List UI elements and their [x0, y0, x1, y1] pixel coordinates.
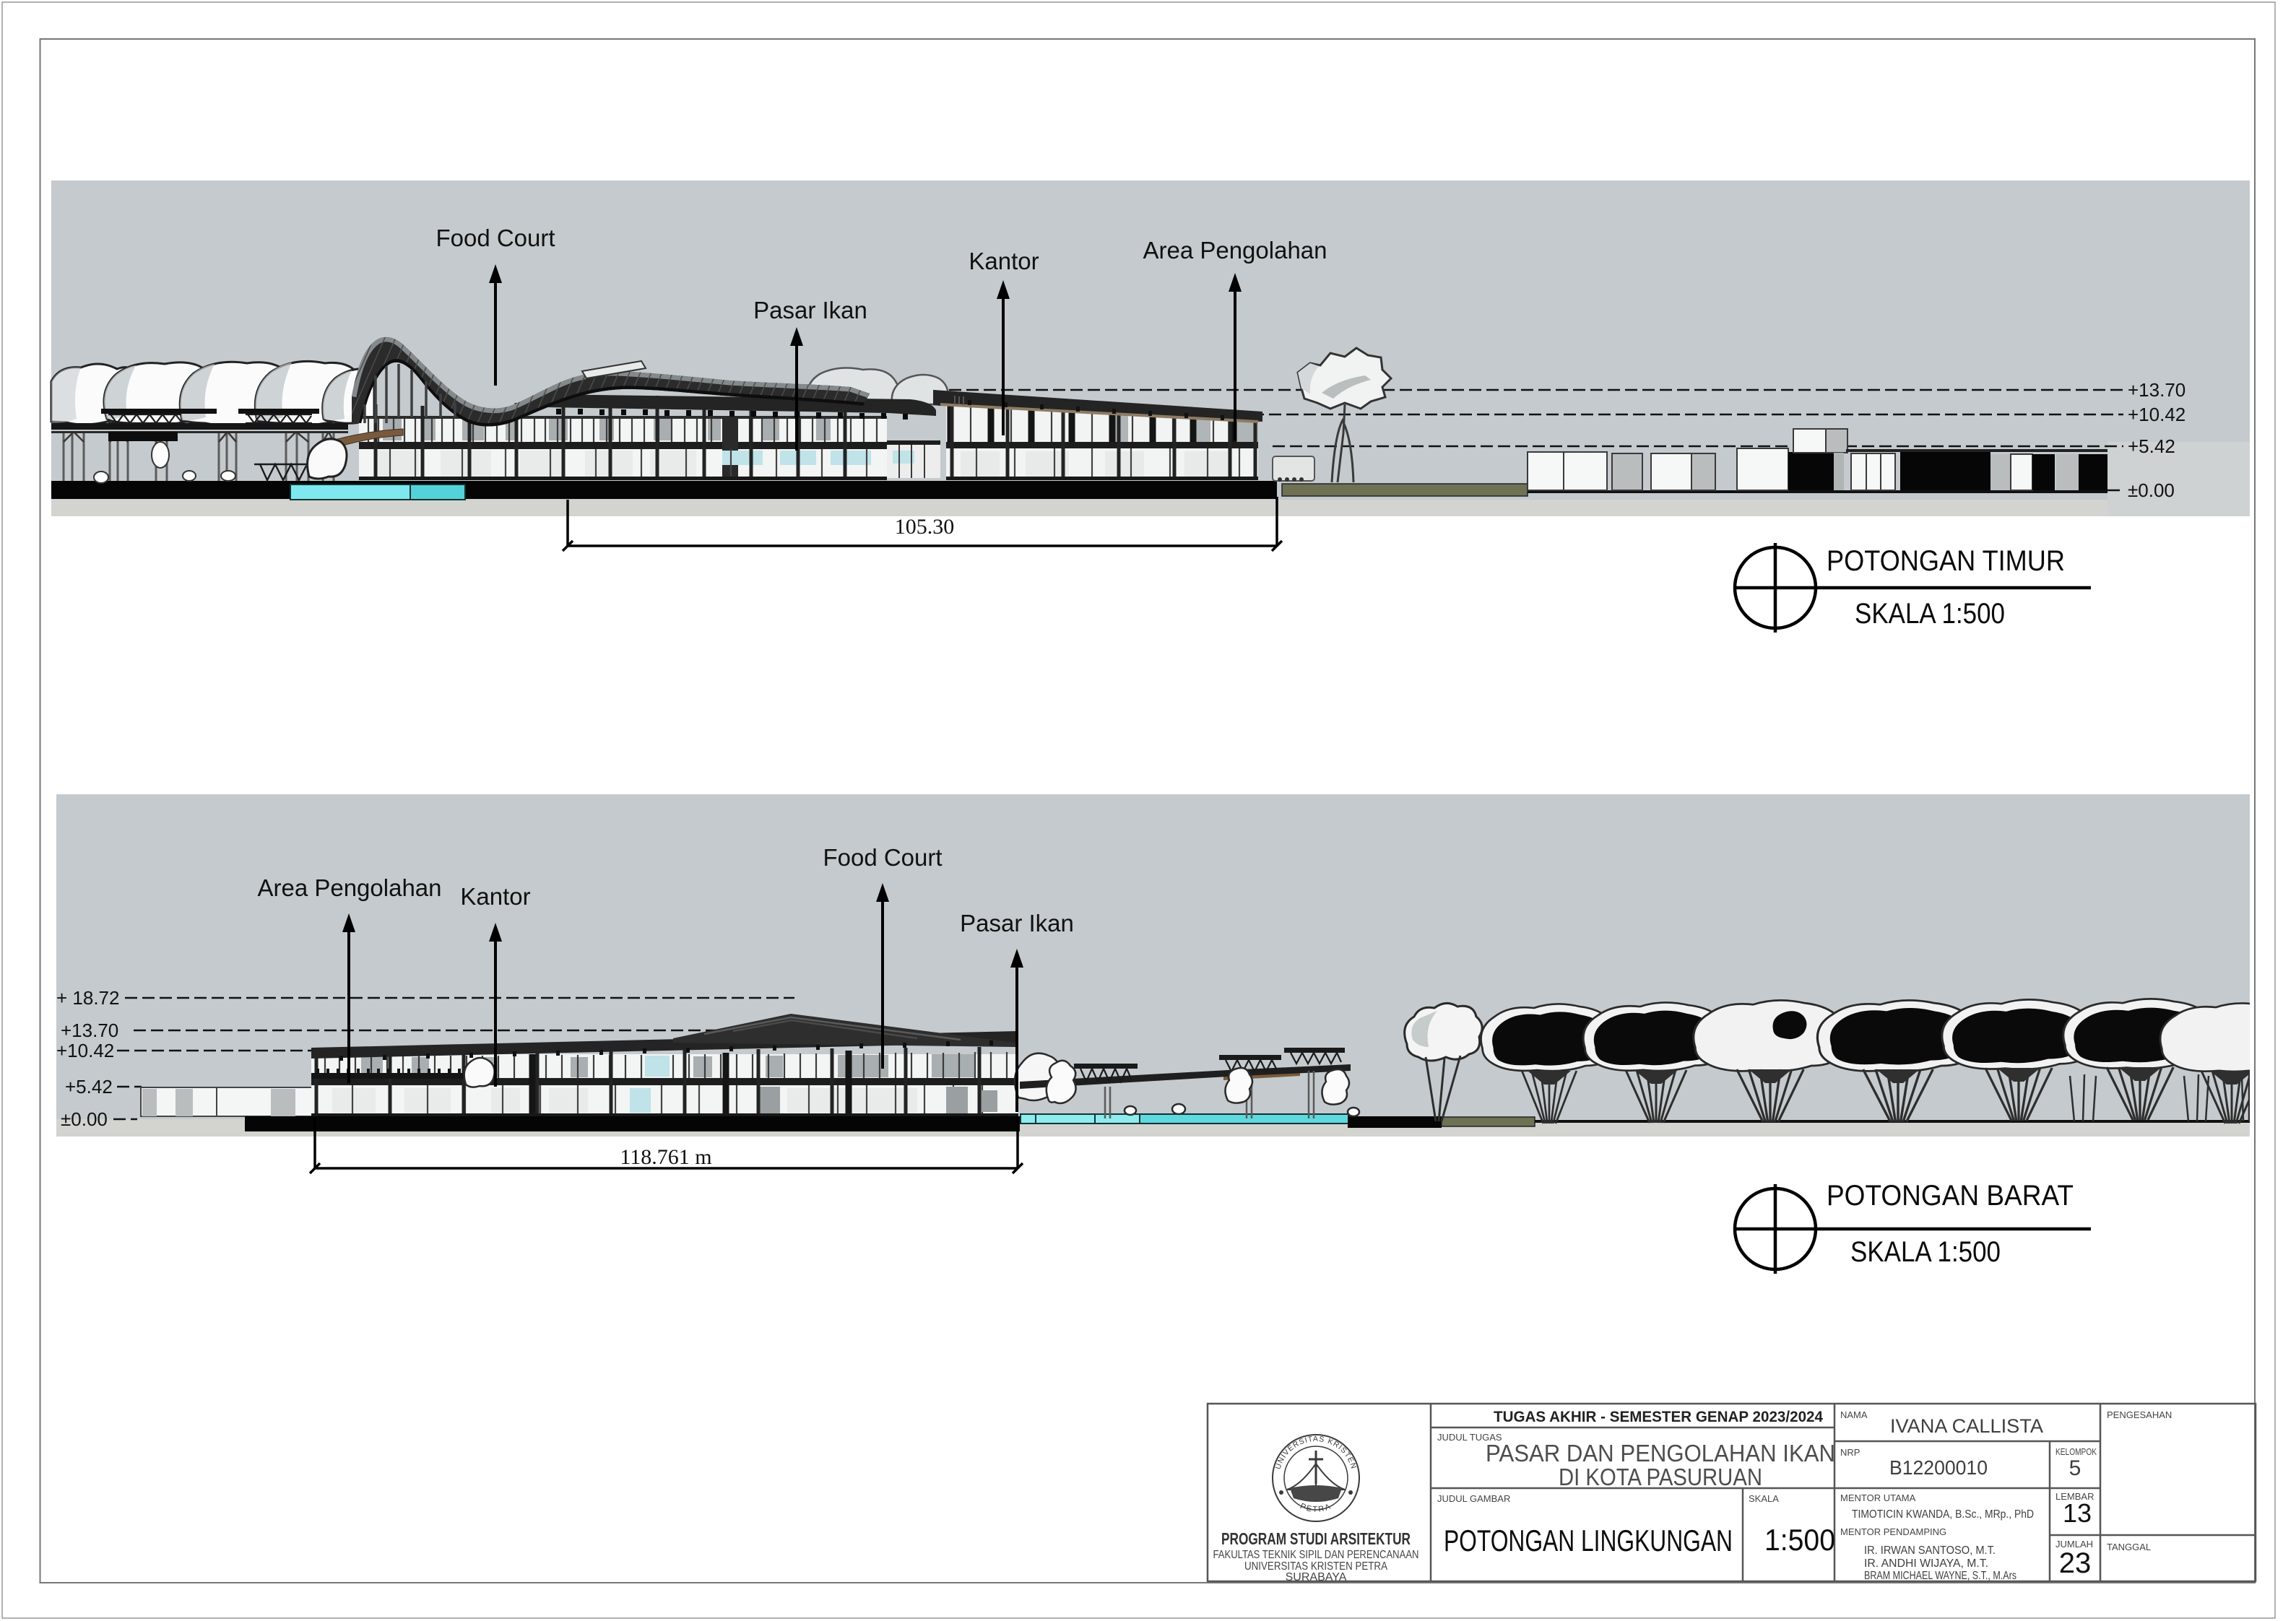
svg-text:MENTOR PENDAMPING: MENTOR PENDAMPING — [1840, 1526, 1946, 1537]
svg-text:+5.42: +5.42 — [2128, 435, 2175, 457]
svg-text:SURABAYA: SURABAYA — [1286, 1571, 1347, 1583]
svg-text:PASAR DAN PENGOLAHAN IKAN: PASAR DAN PENGOLAHAN IKAN — [1486, 1440, 1835, 1466]
svg-text:+13.70: +13.70 — [2128, 379, 2185, 401]
svg-text:TANGGAL: TANGGAL — [2107, 1542, 2151, 1552]
svg-text:MENTOR UTAMA: MENTOR UTAMA — [1840, 1492, 1916, 1503]
svg-text:118.761 m: 118.761 m — [620, 1145, 711, 1169]
svg-text:POTONGAN LINGKUNGAN: POTONGAN LINGKUNGAN — [1444, 1524, 1733, 1557]
svg-text:IR. ANDHI WIJAYA, M.T.: IR. ANDHI WIJAYA, M.T. — [1864, 1557, 1988, 1570]
svg-text:SKALA 1:500: SKALA 1:500 — [1855, 598, 2005, 630]
svg-text:JUDUL GAMBAR: JUDUL GAMBAR — [1437, 1493, 1510, 1504]
svg-text:Kantor: Kantor — [969, 248, 1039, 274]
svg-text:+5.42: +5.42 — [65, 1076, 113, 1098]
svg-text:Area Pengolahan: Area Pengolahan — [1143, 237, 1327, 264]
svg-text:+10.42: +10.42 — [2128, 404, 2185, 425]
svg-text:NAMA: NAMA — [1840, 1409, 1868, 1420]
svg-text:BRAM MICHAEL WAYNE, S.T., M.Ar: BRAM MICHAEL WAYNE, S.T., M.Ars — [1864, 1570, 2016, 1582]
svg-text:Kantor: Kantor — [460, 883, 530, 910]
svg-text:FAKULTAS TEKNIK SIPIL DAN PERE: FAKULTAS TEKNIK SIPIL DAN PERENCANAAN — [1213, 1549, 1419, 1561]
svg-text:POTONGAN BARAT: POTONGAN BARAT — [1827, 1180, 2074, 1212]
svg-text:B12200010: B12200010 — [1889, 1456, 1988, 1479]
svg-text:NRP: NRP — [1840, 1447, 1860, 1458]
svg-text:+13.70: +13.70 — [61, 1020, 118, 1041]
svg-text:SKALA: SKALA — [1749, 1493, 1779, 1504]
svg-text:TUGAS AKHIR - SEMESTER GENAP 2: TUGAS AKHIR - SEMESTER GENAP 2023/2024 — [1494, 1409, 1823, 1425]
svg-text:Area Pengolahan: Area Pengolahan — [257, 874, 441, 901]
svg-text:IR. IRWAN SANTOSO, M.T.: IR. IRWAN SANTOSO, M.T. — [1864, 1544, 1996, 1557]
svg-text:POTONGAN TIMUR: POTONGAN TIMUR — [1827, 545, 2065, 577]
svg-text:SKALA 1:500: SKALA 1:500 — [1850, 1236, 2001, 1268]
svg-text:5: 5 — [2069, 1456, 2081, 1480]
svg-text:KELOMPOK: KELOMPOK — [2055, 1446, 2097, 1457]
svg-text:±0.00: ±0.00 — [2128, 479, 2175, 501]
svg-text:±0.00: ±0.00 — [61, 1108, 108, 1130]
svg-text:IVANA CALLISTA: IVANA CALLISTA — [1890, 1415, 2043, 1437]
svg-text:PROGRAM STUDI ARSITEKTUR: PROGRAM STUDI ARSITEKTUR — [1221, 1529, 1411, 1548]
svg-text:Food Court: Food Court — [823, 844, 942, 871]
svg-text:DI KOTA PASURUAN: DI KOTA PASURUAN — [1559, 1464, 1762, 1490]
svg-text:1:500: 1:500 — [1764, 1523, 1835, 1557]
svg-text:Food Court: Food Court — [436, 225, 555, 251]
svg-text:+ 18.72: + 18.72 — [56, 987, 119, 1009]
svg-text:23: 23 — [2059, 1547, 2092, 1579]
svg-text:105.30: 105.30 — [895, 515, 955, 539]
svg-text:PENGESAHAN: PENGESAHAN — [2107, 1409, 2172, 1420]
svg-text:+10.42: +10.42 — [56, 1040, 114, 1061]
svg-text:13: 13 — [2063, 1498, 2092, 1528]
svg-text:TIMOTICIN KWANDA, B.Sc., MRp.: TIMOTICIN KWANDA, B.Sc., MRp., PhD — [1852, 1508, 2034, 1521]
svg-text:Pasar Ikan: Pasar Ikan — [960, 910, 1074, 936]
svg-text:Pasar Ikan: Pasar Ikan — [753, 297, 867, 323]
